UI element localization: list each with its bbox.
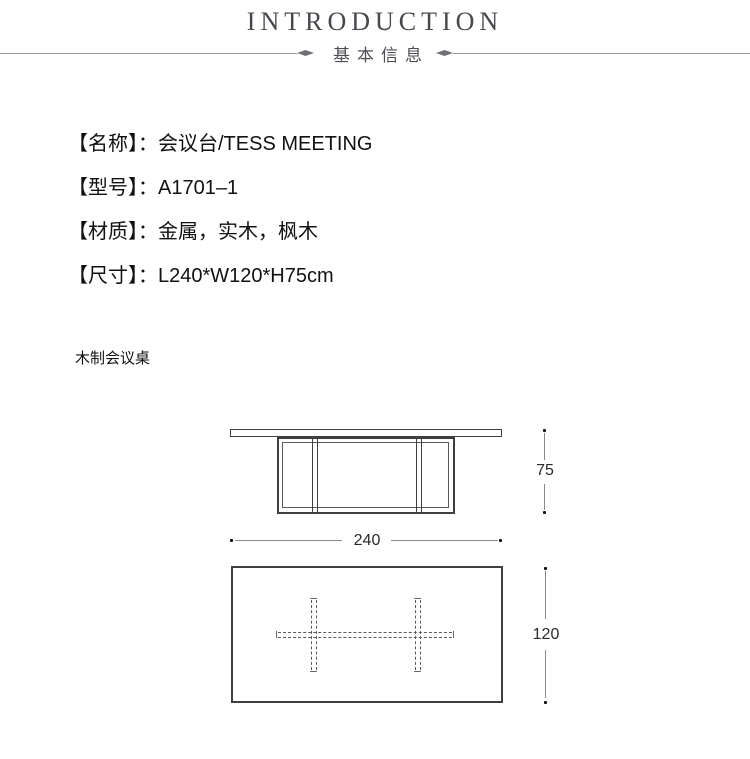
spec-item-name: 【名称】：会议台/TESS MEETING bbox=[68, 131, 372, 158]
section-subtitle: 基本信息 bbox=[333, 41, 429, 66]
spec-value: ：金属，实木，枫木 bbox=[138, 221, 318, 243]
table-top-slab bbox=[230, 429, 502, 437]
diamond-arrow-right-icon bbox=[436, 50, 453, 56]
spec-item-model: 【型号】：A1701–1 bbox=[68, 175, 372, 202]
hidden-line-cap bbox=[414, 598, 421, 599]
spec-label: 【材质】 bbox=[68, 221, 138, 243]
hidden-line-cap bbox=[276, 631, 277, 638]
dim-line-segment bbox=[545, 650, 546, 698]
divider-rule-right bbox=[453, 53, 750, 54]
dim-endpoint-dot bbox=[543, 511, 546, 514]
dim-height-label: 75 bbox=[527, 461, 563, 481]
dim-endpoint-dot bbox=[230, 539, 233, 542]
divider-rule-left bbox=[0, 53, 297, 54]
dim-line-segment bbox=[544, 484, 545, 510]
spec-item-size: 【尺寸】：L240*W120*H75cm bbox=[68, 263, 372, 290]
hidden-line-cap bbox=[310, 598, 317, 599]
spec-item-material: 【材质】：金属，实木，枫木 bbox=[68, 219, 372, 246]
product-spec-list: 【名称】：会议台/TESS MEETING 【型号】：A1701–1 【材质】：… bbox=[68, 131, 372, 307]
hidden-base-line bbox=[278, 632, 452, 638]
hidden-line-cap bbox=[453, 631, 454, 638]
section-divider: 基本信息 bbox=[0, 41, 750, 65]
page-title: INTRODUCTION bbox=[0, 0, 750, 38]
diamond-arrow-left-icon bbox=[297, 50, 314, 56]
spec-value: ：会议台/TESS MEETING bbox=[138, 133, 372, 155]
dim-line-segment bbox=[544, 433, 545, 460]
hidden-leg-line-right bbox=[415, 600, 421, 670]
spec-label: 【名称】 bbox=[68, 133, 138, 155]
dim-line-segment bbox=[391, 540, 498, 541]
dim-endpoint-dot bbox=[499, 539, 502, 542]
hidden-line-cap bbox=[310, 671, 317, 672]
dim-width-label: 240 bbox=[345, 531, 389, 551]
page-header: INTRODUCTION 基本信息 bbox=[0, 0, 750, 65]
dim-endpoint-dot bbox=[544, 701, 547, 704]
spec-label: 【型号】 bbox=[68, 177, 138, 199]
hidden-line-cap bbox=[414, 671, 421, 672]
table-leg-right bbox=[416, 439, 422, 512]
spec-value: ：L240*W120*H75cm bbox=[138, 265, 334, 287]
table-base-inner-frame bbox=[282, 442, 449, 508]
table-leg-left bbox=[312, 439, 318, 512]
dim-depth-label: 120 bbox=[527, 625, 565, 645]
dim-endpoint-dot bbox=[543, 429, 546, 432]
dim-line-segment bbox=[235, 540, 342, 541]
spec-value: ：A1701–1 bbox=[138, 177, 238, 199]
dim-line-segment bbox=[545, 571, 546, 619]
dim-endpoint-dot bbox=[544, 567, 547, 570]
product-caption: 木制会议桌 bbox=[75, 347, 150, 368]
hidden-leg-line-left bbox=[311, 600, 317, 670]
spec-label: 【尺寸】 bbox=[68, 265, 138, 287]
